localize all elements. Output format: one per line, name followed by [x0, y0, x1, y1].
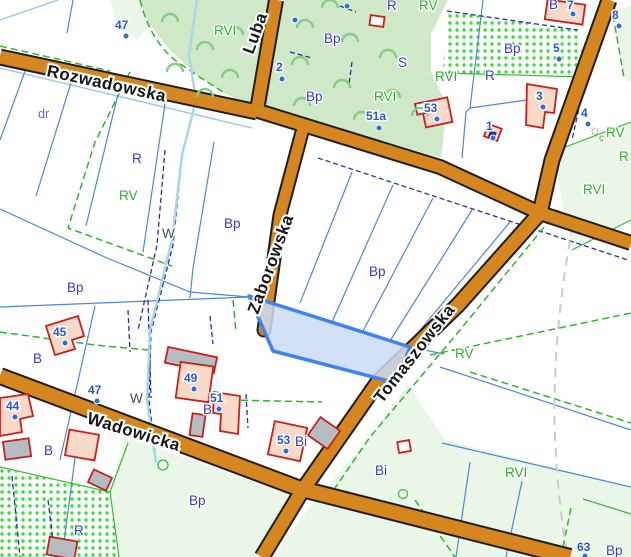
parcel-line	[0, 0, 58, 20]
marker-label: 2	[276, 60, 283, 74]
marker-dot	[376, 125, 382, 131]
marker-dot	[191, 386, 197, 392]
landuse-label: R	[485, 68, 495, 83]
landuse-label: RV	[119, 188, 138, 203]
parcel-line	[0, 209, 249, 297]
marker-label: 49	[184, 371, 198, 385]
landuse-label: RVI	[214, 23, 236, 38]
green-dashed	[470, 372, 631, 423]
marker-dot	[62, 340, 68, 346]
landuse-label: RV	[419, 0, 438, 13]
landuse-label: R	[387, 0, 397, 13]
landuse-label: RVI	[374, 89, 396, 104]
marker-dot	[585, 121, 591, 127]
marker-label: 53	[277, 433, 291, 447]
building	[65, 430, 99, 461]
marker-label: 8	[612, 8, 619, 22]
street-label-rozwadowska: Rozwadowska	[45, 61, 168, 105]
parcel-line	[440, 367, 631, 430]
parcel-line	[36, 73, 74, 196]
selected-parcel[interactable]	[249, 296, 410, 383]
marker-label: 5	[553, 41, 560, 55]
landuse-label: RV	[606, 125, 625, 140]
landuse-label: Bi	[375, 463, 387, 478]
landuse-label: Bp	[606, 543, 623, 557]
marker-dot	[616, 23, 622, 29]
marker-label: 53	[424, 101, 438, 115]
landuse-label: RVI	[505, 465, 527, 480]
tree-icon	[167, 64, 183, 72]
landuse-label: RVI	[435, 69, 457, 84]
marker-dot	[283, 448, 289, 454]
landuse-label: Bp	[306, 89, 323, 104]
marker-label: 7	[567, 0, 574, 12]
landuse-label: Bp	[189, 493, 206, 508]
marker-dot	[216, 406, 222, 412]
parcel-line	[67, 0, 73, 33]
landuse-label: Bp	[504, 41, 521, 56]
landuse-label: B	[33, 351, 42, 366]
landuse-label: R	[74, 523, 84, 538]
map-canvas[interactable]: ☼ Rozwadowska Luba Zaborowska Tomaszowsk…	[0, 0, 631, 557]
parcel-line	[190, 142, 214, 298]
parcel-line	[0, 63, 28, 140]
landuse-label: R	[132, 151, 142, 166]
boundary-dashed	[246, 394, 248, 428]
landuse-label: S	[398, 55, 407, 70]
landuse-label: Bp	[67, 280, 84, 295]
green-dashed	[230, 400, 322, 402]
marker-dot	[94, 398, 100, 404]
landuse-label: B	[549, 0, 558, 12]
marker-dot	[582, 553, 588, 557]
marker-label: 44	[6, 399, 20, 413]
landuse-label: W	[162, 226, 175, 241]
marker-dot	[12, 414, 18, 420]
marker-dot	[490, 135, 496, 141]
marker-label: 1	[486, 119, 493, 133]
landuse-label: B	[44, 443, 53, 458]
landuse-label: Bp	[369, 264, 386, 279]
landuse-label: W	[130, 391, 143, 406]
landuse-label: c	[599, 133, 604, 144]
address-dot	[292, 17, 298, 23]
marker-dot	[123, 33, 129, 39]
green-dashed	[233, 300, 236, 333]
marker-label: 63	[577, 540, 591, 554]
boundary-dashed	[210, 316, 213, 344]
marker-dot	[540, 104, 546, 110]
marker-label: 45	[53, 325, 67, 339]
landuse-label: RV	[455, 346, 474, 361]
building	[397, 440, 411, 453]
building	[3, 438, 31, 459]
address-dot	[344, 3, 350, 9]
marker-label: 3	[536, 89, 543, 103]
marker-dot	[434, 116, 440, 122]
boundary-dashed	[138, 150, 165, 330]
landuse-label: dr	[38, 107, 49, 121]
landuse-label: R	[619, 149, 629, 164]
marker-label: 51a	[366, 109, 386, 123]
building	[369, 15, 384, 27]
marker-dot	[556, 56, 562, 62]
marker-dot	[570, 11, 576, 17]
marker-label: 47	[88, 383, 102, 397]
parcel-line	[332, 185, 393, 322]
parcel-line	[0, 297, 249, 307]
landuse-label: Bp	[324, 31, 341, 46]
boundary-dashed	[128, 310, 130, 352]
landuse-label: Bp	[224, 216, 241, 231]
parcel-line	[300, 172, 352, 303]
marker-label: 51	[210, 391, 224, 405]
marker-label: 4	[581, 106, 588, 120]
landuse-label: RVI	[583, 182, 605, 197]
marker-dot	[279, 76, 285, 82]
marker-label: 47	[115, 18, 129, 32]
landuse-label: Bi	[295, 434, 307, 449]
